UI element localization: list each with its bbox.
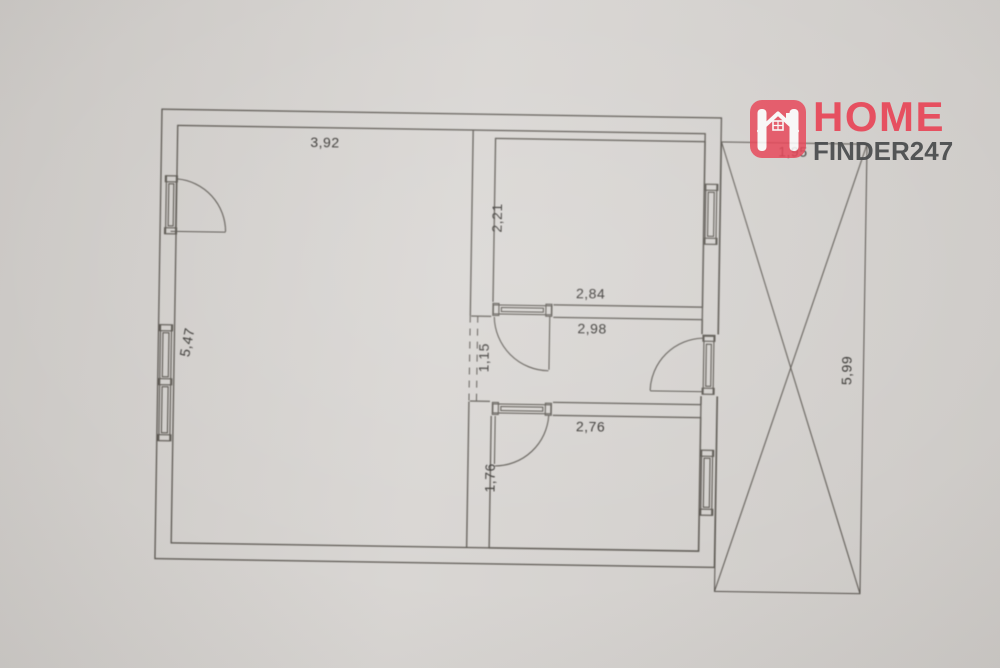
interior-walls	[467, 130, 706, 551]
floorplan-drawing: 3,92 5,47 2,84 2,21 2,98 1,15 2,76 1,76 …	[0, 0, 1000, 668]
dim-living-width: 3,92	[310, 134, 339, 150]
window-icon-bottom-right-wall	[700, 450, 714, 515]
floorplan-svg: 3,92 5,47 2,84 2,21 2,98 1,15 2,76 1,76 …	[0, 0, 1000, 668]
dim-terrace-width: 1,95	[778, 143, 807, 159]
dim-top-room-width: 2,84	[576, 285, 605, 301]
floorplan-photo: 3,92 5,47 2,84 2,21 2,98 1,15 2,76 1,76 …	[0, 0, 1000, 668]
dim-hall-height: 1,15	[475, 343, 491, 372]
dim-living-height: 5,47	[176, 326, 197, 358]
window-icon-top-right-wall	[704, 184, 718, 244]
dim-bottom-room-width: 2,76	[576, 418, 605, 434]
bottom-right-room	[489, 414, 701, 551]
dim-terrace-height: 5,99	[838, 356, 854, 385]
entry-door-icon	[165, 176, 227, 235]
dim-top-room-height: 2,21	[489, 203, 505, 232]
dim-bottom-room-height: 1,76	[482, 463, 498, 492]
window-icon-left-wall	[158, 325, 173, 441]
dim-hall-width: 2,98	[577, 320, 606, 336]
top-right-room	[493, 138, 705, 307]
outer-walls	[155, 109, 721, 567]
